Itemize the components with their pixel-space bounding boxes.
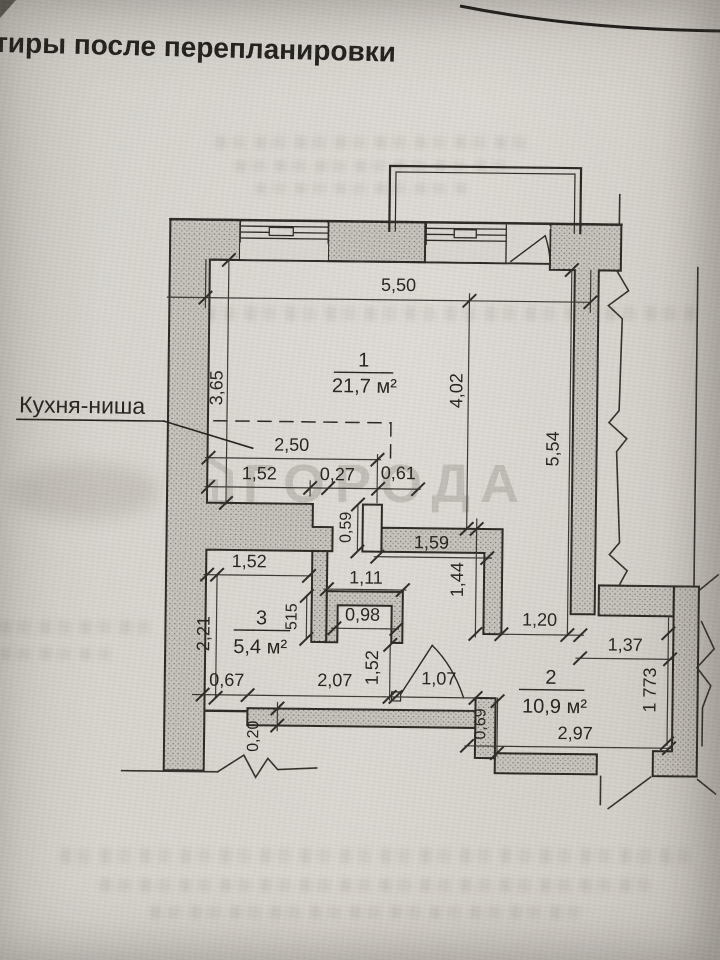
room3-number: 3 [256,607,267,629]
photo-corner-shadow [0,0,16,18]
dim-inner-wall: 1,44 [447,562,467,597]
wall-room3-right [311,551,327,642]
dim-duct-inner: 0,98 [345,604,380,624]
dim-room2-stub: 0,69 [472,708,489,739]
dim-room2-right: 1 773 [639,667,660,712]
dim-room3-top: 1,52 [232,551,267,571]
dim-niche-total: 2,50 [274,434,309,454]
wall-stub-059 [362,505,382,552]
room1-area: 21,7 м² [332,375,397,398]
dim-bottom-b: 2,07 [317,670,352,690]
dim-stub: 0,59 [337,512,354,543]
room3-area: 5,4 м² [233,636,287,659]
wall-corridor-bottom [247,708,475,728]
dim-top-width: 5,50 [381,275,416,295]
room2-area: 10,9 м² [522,696,587,719]
dim-bottom-c: 1,07 [421,668,456,688]
wall-room2-top [599,585,674,616]
window-vent-symbol [454,230,476,238]
window-vent-symbol [269,227,293,235]
dim-room1-left: 3,65 [206,370,226,405]
dim-room2-bottom: 2,97 [558,723,593,743]
photographed-floor-plan-page: { "page": { "title_fragment": "тиры посл… [0,0,720,960]
dim-duct-outer: 1,11 [349,567,383,587]
dim-door-vert: 1,52 [362,650,382,685]
balcony-door-opening [506,225,550,263]
room1-number: 1 [358,349,369,371]
dim-room1-mid: 4,02 [446,373,466,408]
dim-corridor-opening: 1,20 [522,610,557,630]
room2-number: 2 [545,667,556,689]
page-edge-crease [460,6,720,31]
wall-top-middle-pier [328,221,425,262]
dim-wall-thickness: 0,20 [245,720,262,751]
floor-plan-drawing: тиры после перепланировки ГОРОДА [0,0,720,960]
page-title: тиры после перепланировки [0,27,396,68]
dim-niche-b: 0,27 [320,464,355,484]
kitchen-niche-label: Кухня-ниша [19,391,146,419]
dim-partition: 1,59 [414,532,449,552]
dim-room2-top: 1,37 [608,635,643,655]
dim-shaft: 515 [283,603,300,630]
dim-room3-left: 2,21 [193,616,213,651]
wall-room2-bottom [495,753,597,774]
dim-niche-c: 0,61 [381,463,416,483]
dim-right-wall: 5,54 [542,431,562,466]
dim-bottom-a: 0,67 [209,670,244,690]
dim-niche-a: 1,52 [242,463,277,483]
